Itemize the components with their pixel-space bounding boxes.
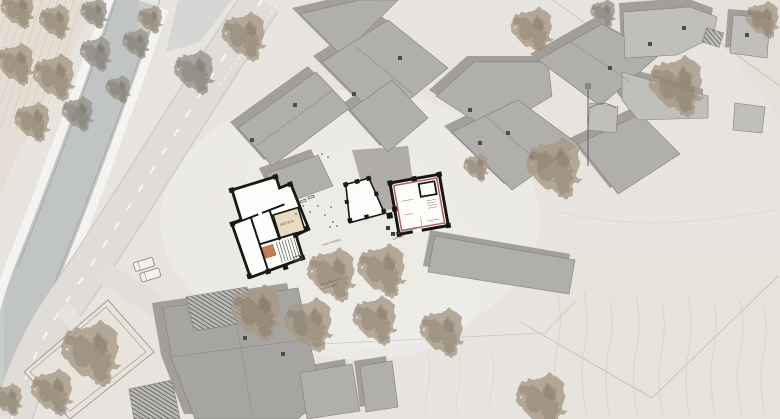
building-roof xyxy=(588,103,618,133)
tree xyxy=(178,51,216,89)
tree xyxy=(18,103,52,137)
tree xyxy=(289,299,335,345)
building-roof xyxy=(733,103,765,133)
tree xyxy=(654,57,706,109)
inner-room xyxy=(419,181,437,197)
tree xyxy=(65,97,95,127)
tree xyxy=(236,286,284,334)
tree xyxy=(532,139,584,191)
tree xyxy=(357,297,399,339)
tree xyxy=(125,29,151,55)
site-plan: 1027.5 m xyxy=(0,0,780,419)
tree xyxy=(226,13,268,55)
tree xyxy=(37,55,77,95)
terrain-patch xyxy=(555,245,780,419)
tree xyxy=(515,8,555,48)
tree xyxy=(108,76,132,100)
site-plan-drawing: 1027.5 m xyxy=(0,0,780,419)
tree xyxy=(42,5,72,35)
tree xyxy=(593,0,617,24)
tree xyxy=(0,44,36,80)
tree xyxy=(83,37,113,67)
tree xyxy=(83,0,109,25)
tree xyxy=(466,154,490,178)
tree xyxy=(140,6,164,30)
tree xyxy=(749,2,780,34)
tree xyxy=(424,309,466,351)
tree xyxy=(67,322,123,378)
tree xyxy=(35,370,75,410)
building-roof xyxy=(360,361,398,412)
tree xyxy=(362,245,408,291)
building-roof xyxy=(300,364,360,419)
tree xyxy=(312,249,358,295)
